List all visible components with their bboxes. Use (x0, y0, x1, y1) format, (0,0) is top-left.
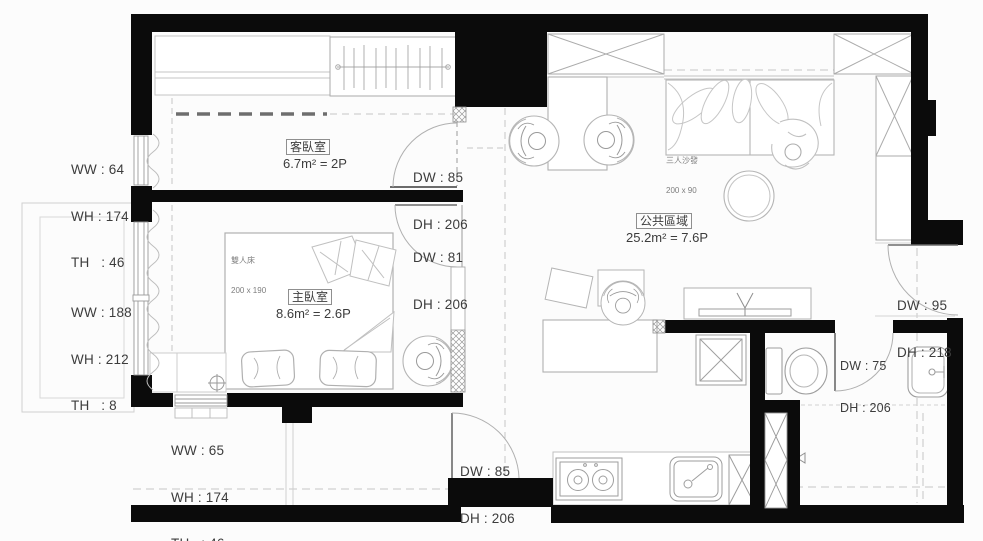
door-dim-master: DW : 81 DH : 206 (413, 219, 468, 328)
dim-line: DW : 81 (413, 250, 468, 266)
dim-line: DW : 95 (897, 298, 952, 314)
master-dresser (150, 353, 226, 392)
door-dim-bathroom: DW : 75 DH : 206 (840, 331, 891, 429)
dim-line: TH : 46 (171, 536, 229, 541)
dim-line: DH : 206 (460, 511, 515, 527)
dim-line: WW : 65 (171, 443, 229, 459)
curtain-squiggles (147, 134, 159, 390)
dim-line: DW : 85 (413, 170, 468, 186)
dim-line: WW : 64 (71, 162, 129, 178)
window-dim-master-left: WW : 188 WH : 212 TH : 8 (71, 274, 132, 429)
dim-line: DW : 85 (460, 464, 515, 480)
floor-plan: WW : 64 WH : 174 TH : 46 WW : 188 WH : 2… (0, 0, 983, 541)
dim-line: DW : 75 (840, 359, 891, 373)
desk-chair-person-left (509, 116, 559, 166)
dim-line: DH : 218 (897, 345, 952, 361)
door-dim-entry-right: DW : 95 DH : 218 (897, 267, 952, 376)
dim-line: DH : 206 (413, 297, 468, 313)
window-master-bottom (175, 395, 227, 406)
room-area-guest-bedroom: 6.7m² = 2P (283, 156, 347, 171)
stove-icon (556, 458, 622, 500)
dim-line: DH : 206 (840, 401, 891, 415)
toilet-icon (766, 348, 827, 394)
dim-line: TH : 46 (71, 255, 129, 271)
room-label-guest-bedroom: 客臥室 (286, 139, 330, 155)
wardrobe-cabinet-top-left (548, 34, 664, 77)
master-chair-person (403, 336, 453, 386)
dim-line: WH : 174 (71, 209, 129, 225)
washing-machine (696, 335, 746, 385)
desk-chair-person-right (584, 115, 634, 165)
bed-size-label: 雙人床 200 x 190 (231, 236, 266, 306)
room-label-public-area: 公共區域 (636, 213, 692, 229)
shower-glass-partition (765, 413, 787, 508)
window-dim-guest-left: WW : 64 WH : 174 TH : 46 (71, 131, 129, 286)
guest-bedroom-overhead-storage (155, 36, 330, 95)
dining-set (543, 268, 657, 372)
furniture-size: 200 x 190 (231, 286, 266, 296)
window-dim-master-bottom: WW : 65 WH : 174 TH : 46 (171, 412, 229, 541)
guest-bedroom-closet (330, 37, 456, 96)
furniture-size: 200 x 90 (666, 186, 698, 196)
room-label-master-bedroom: 主臥室 (288, 289, 332, 305)
wall-end-hatch (653, 320, 665, 333)
room-area-master-bedroom: 8.6m² = 2.6P (276, 306, 351, 321)
furniture-name: 雙人床 (231, 256, 266, 266)
dim-line: WW : 188 (71, 305, 132, 321)
room-area-public-area: 25.2m² = 7.6P (626, 230, 708, 245)
window-master-left (133, 222, 149, 375)
tv-console (684, 288, 811, 319)
dim-line: TH : 8 (71, 398, 132, 414)
wardrobe-cabinet-top-right (834, 34, 914, 74)
round-coffee-table (724, 171, 774, 221)
dim-line: WH : 212 (71, 352, 132, 368)
tall-cabinet-right-wall (876, 76, 913, 240)
beam-lines (664, 76, 834, 79)
door-dim-entry-bottom: DW : 85 DH : 206 (460, 433, 515, 541)
window-guest-left (134, 136, 148, 185)
furniture-name: 三人沙發 (666, 156, 698, 166)
person-on-sofa (772, 119, 819, 169)
sofa-size-label: 三人沙發 200 x 90 (666, 136, 698, 206)
dining-chair-person (601, 281, 645, 325)
kitchen-sink-icon (670, 457, 722, 501)
dim-line: WH : 174 (171, 490, 229, 506)
